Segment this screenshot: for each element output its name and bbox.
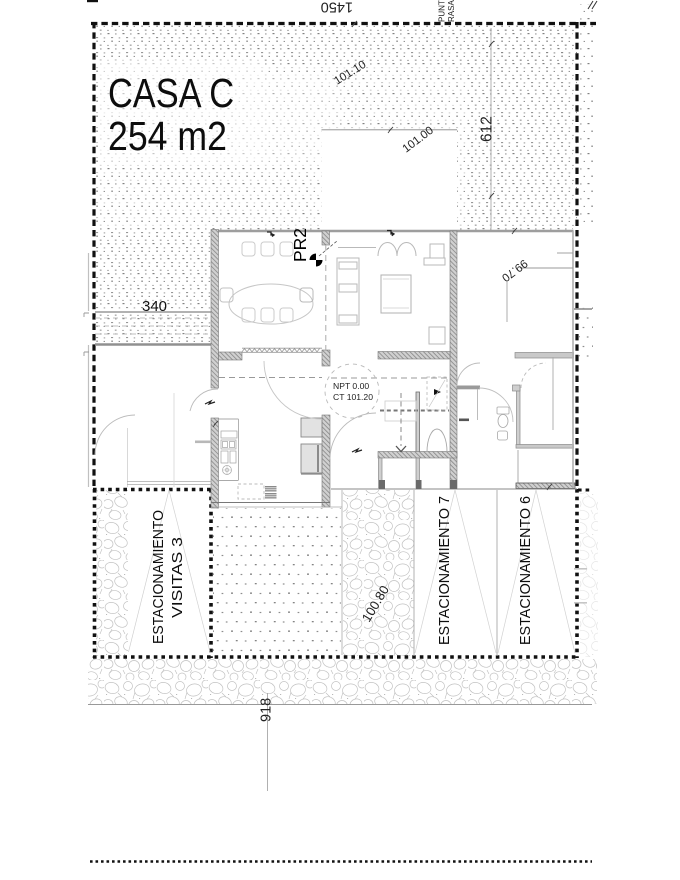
svg-text:ESTACIONAMIENTO 6: ESTACIONAMIENTO 6: [517, 496, 534, 645]
svg-text:RASANTE: RASANTE: [447, 0, 456, 22]
svg-text:ESTACIONAMIENTO 7: ESTACIONAMIENTO 7: [436, 496, 453, 645]
svg-text:PR2: PR2: [290, 228, 310, 262]
svg-text:ESTACIONAMIENTO: ESTACIONAMIENTO: [150, 510, 167, 644]
svg-text:1450: 1450: [321, 0, 353, 15]
svg-text:612: 612: [479, 116, 496, 142]
svg-text:NPT 0.00: NPT 0.00: [333, 381, 369, 391]
svg-text:PUNTO: PUNTO: [438, 0, 447, 22]
svg-text:918: 918: [259, 698, 275, 722]
svg-text:CASA C: CASA C: [108, 70, 234, 116]
svg-text:CT 101.20: CT 101.20: [333, 392, 373, 402]
svg-text:VISITAS 3: VISITAS 3: [169, 537, 186, 618]
svg-text:254 m2: 254 m2: [108, 113, 227, 159]
